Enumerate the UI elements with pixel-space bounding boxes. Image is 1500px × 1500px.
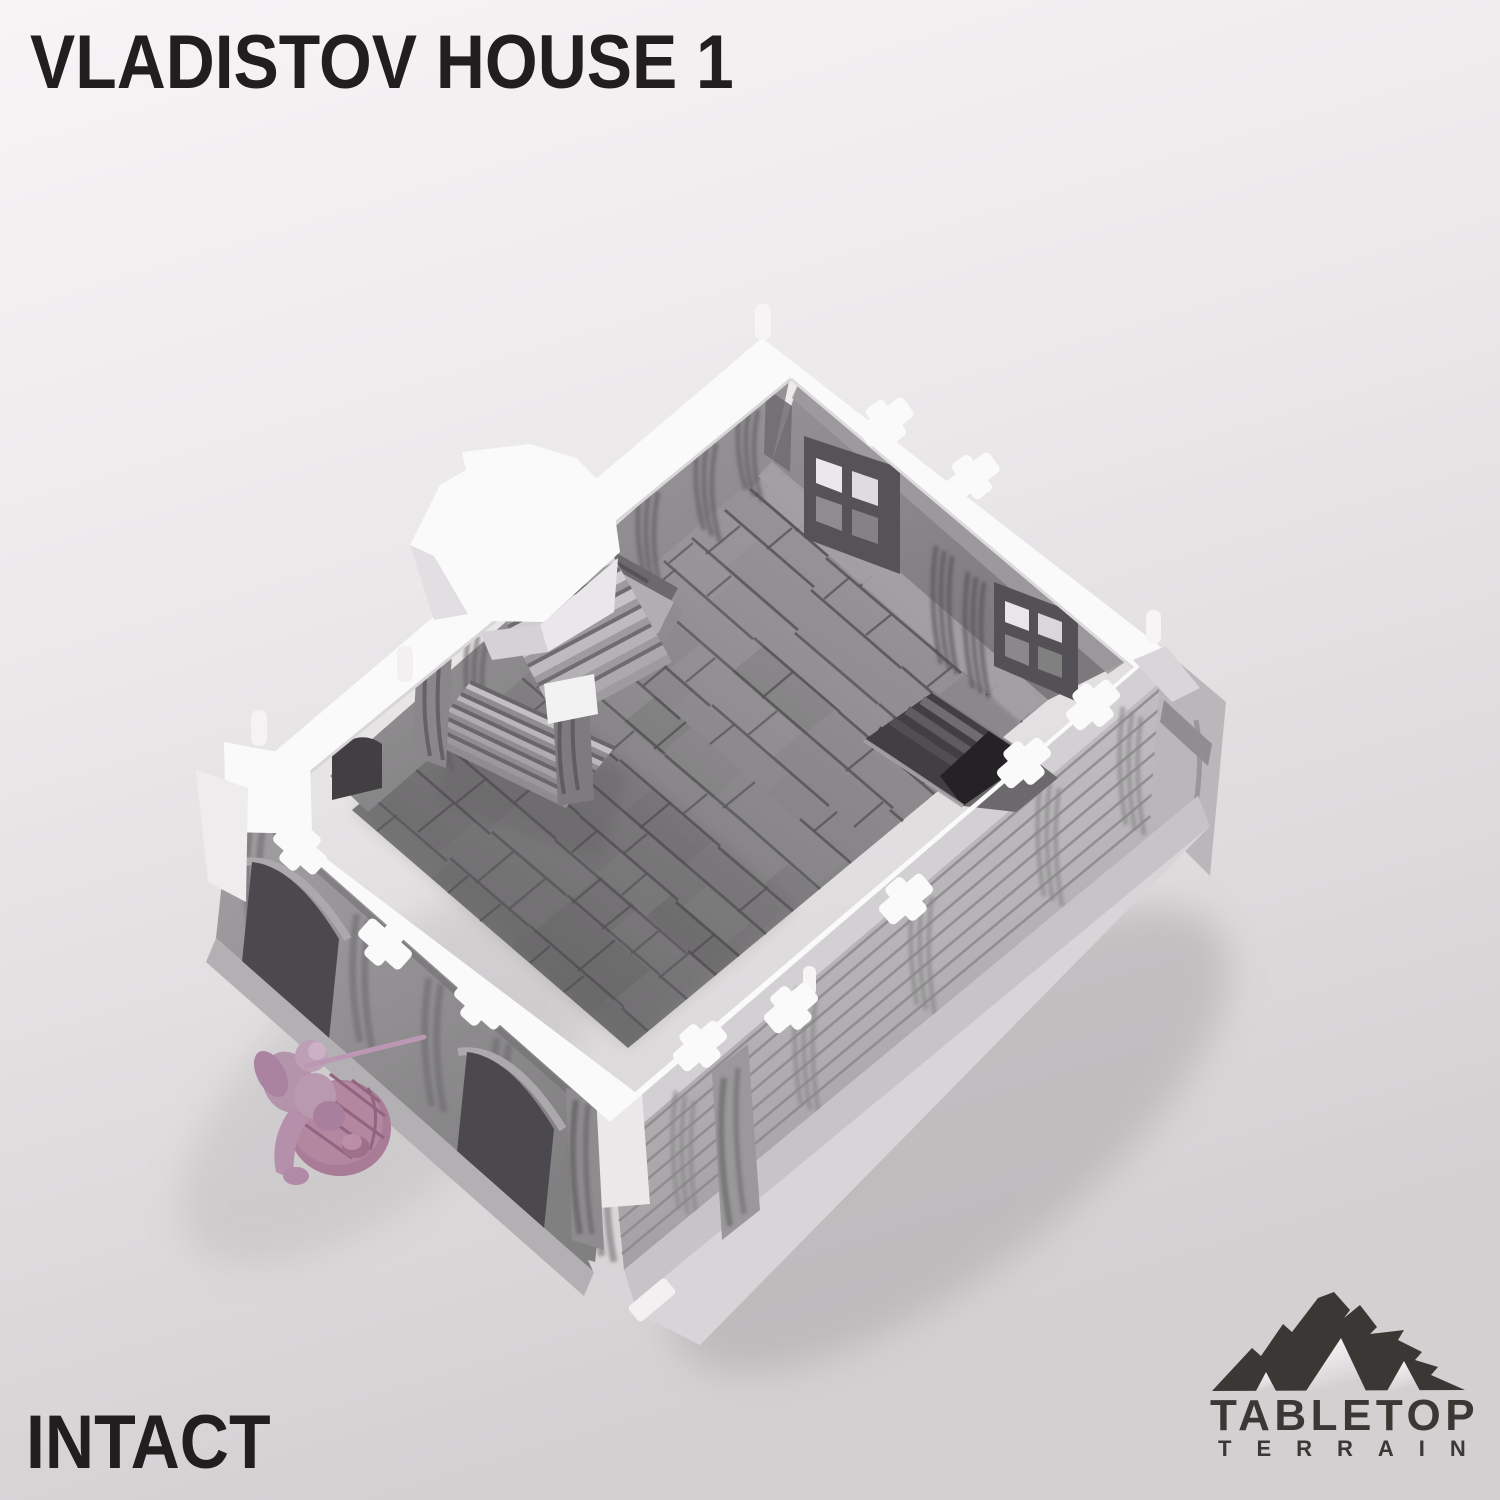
svg-text:VLADISTOV HOUSE 1: VLADISTOV HOUSE 1 — [30, 20, 734, 104]
svg-text:TERRAIN: TERRAIN — [1218, 1436, 1491, 1461]
svg-text:TABLETOP: TABLETOP — [1210, 1391, 1479, 1440]
svg-text:INTACT: INTACT — [26, 1401, 271, 1485]
